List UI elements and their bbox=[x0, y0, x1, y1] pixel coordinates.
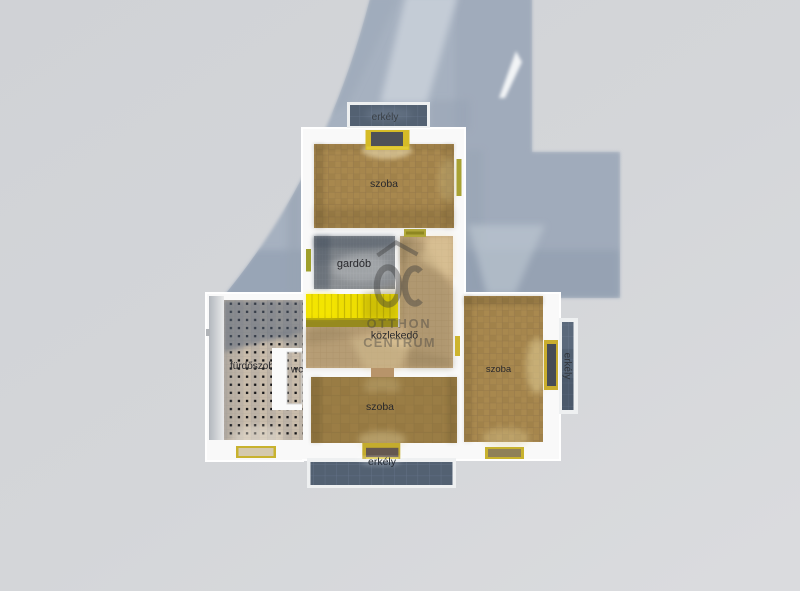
svg-text:erkély: erkély bbox=[368, 456, 397, 468]
svg-text:gardób: gardób bbox=[337, 258, 371, 270]
svg-text:wc: wc bbox=[290, 365, 303, 376]
svg-text:szoba: szoba bbox=[486, 364, 512, 375]
svg-text:erkély: erkély bbox=[562, 353, 573, 380]
svg-text:szoba: szoba bbox=[366, 401, 394, 413]
svg-text:közlekedő: közlekedő bbox=[371, 330, 418, 342]
svg-text:szoba: szoba bbox=[370, 178, 398, 190]
svg-text:erkély: erkély bbox=[372, 112, 399, 123]
